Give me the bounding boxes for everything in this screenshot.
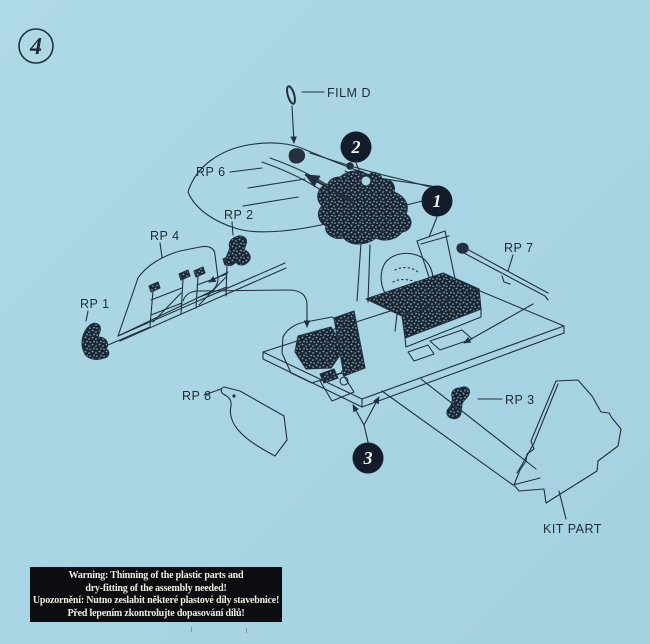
rp8-label: RP 8 — [182, 389, 212, 403]
rp6-label: RP 6 — [196, 165, 226, 179]
panel-drop-line — [368, 245, 370, 302]
rp4-sidewall-part — [118, 243, 286, 341]
cockpit-floor-assembly — [183, 273, 564, 407]
rp2-placement-arrow — [209, 272, 228, 282]
kit-part-placement-line — [382, 391, 513, 485]
panel-drop-line — [357, 243, 361, 301]
rp1-label: RP 1 — [80, 297, 110, 311]
rp4-leader-line — [160, 243, 162, 257]
rp2-leader-line — [232, 222, 233, 235]
rp2-label: RP 2 — [224, 208, 254, 222]
rp6-leader-line — [230, 168, 262, 172]
rp4-label: RP 4 — [150, 229, 180, 243]
instrument-panel-part — [306, 171, 411, 302]
warning-box: Warning: Thinning of the plastic parts a… — [30, 567, 282, 622]
warning-line-en-2: dry-fitting of the assembly needed! — [30, 583, 282, 596]
badge-1-number: 1 — [433, 191, 442, 211]
badge-3-number: 3 — [363, 448, 373, 468]
step-number: 4 — [29, 34, 42, 60]
rp1-leader-line — [86, 311, 88, 321]
warning-line-cz-2: Před lepením zkontrolujte dopasování díl… — [30, 608, 282, 621]
rp2-part — [209, 222, 250, 282]
rp7-leader-line — [508, 255, 513, 271]
rp3-part — [447, 387, 502, 419]
gunsight-detail — [289, 149, 304, 163]
warning-line-en-1: Warning: Thinning of the plastic parts a… — [30, 570, 282, 583]
rp3-label: RP 3 — [505, 393, 535, 407]
kit-part-outline — [382, 379, 621, 519]
rp1-part — [82, 311, 150, 359]
warning-line-cz-1: Upozornění: Nutno zeslabit některé plast… — [30, 595, 282, 608]
rp1-placement-line — [108, 327, 150, 345]
kit-part-label: KIT PART — [543, 522, 602, 536]
rp8-part — [204, 387, 287, 456]
kit-part-leader-line — [559, 491, 566, 519]
badge-2-number: 2 — [351, 137, 361, 157]
instruction-sheet-page: 4 FILM D RP 6 RP 2 RP 4 RP 1 RP 7 RP 3 R… — [0, 0, 650, 644]
film-label: FILM D — [327, 86, 371, 100]
rp7-label: RP 7 — [504, 241, 534, 255]
film-placement-arrow — [292, 106, 294, 143]
assembly-diagram: 4 FILM D RP 6 RP 2 RP 4 RP 1 RP 7 RP 3 R… — [0, 0, 650, 644]
film-part — [285, 85, 324, 143]
